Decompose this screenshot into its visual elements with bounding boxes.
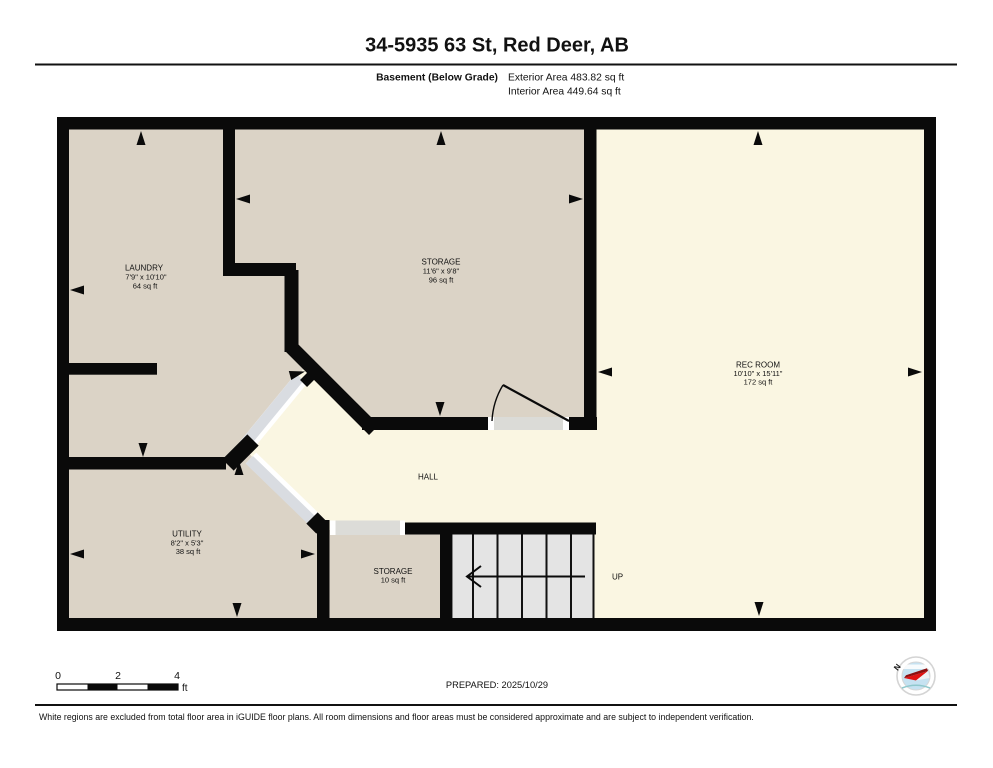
svg-text:White regions are excluded fro: White regions are excluded from total fl… — [39, 712, 754, 722]
svg-text:10 sq ft: 10 sq ft — [381, 576, 407, 585]
svg-text:172 sq ft: 172 sq ft — [744, 378, 774, 387]
svg-text:HALL: HALL — [418, 473, 439, 482]
svg-text:2: 2 — [115, 670, 121, 682]
svg-text:PREPARED: 2025/10/29: PREPARED: 2025/10/29 — [446, 680, 548, 690]
svg-text:ft: ft — [182, 683, 188, 694]
svg-text:64 sq ft: 64 sq ft — [133, 282, 159, 291]
svg-text:0: 0 — [55, 670, 61, 682]
svg-text:7'9" x 10'10": 7'9" x 10'10" — [125, 273, 166, 282]
svg-text:Exterior Area 483.82 sq ft: Exterior Area 483.82 sq ft — [508, 73, 624, 84]
svg-text:STORAGE: STORAGE — [422, 258, 461, 267]
svg-text:38 sq ft: 38 sq ft — [176, 547, 202, 556]
svg-text:Interior Area 449.64 sq ft: Interior Area 449.64 sq ft — [508, 87, 621, 98]
svg-text:Basement (Below Grade): Basement (Below Grade) — [376, 73, 498, 84]
svg-text:UP: UP — [612, 573, 623, 582]
svg-text:UTILITY: UTILITY — [172, 530, 202, 539]
svg-text:11'6" x 9'8": 11'6" x 9'8" — [423, 267, 460, 276]
svg-text:34-5935 63 St, Red Deer, AB: 34-5935 63 St, Red Deer, AB — [365, 35, 629, 57]
svg-text:96 sq ft: 96 sq ft — [429, 276, 455, 285]
svg-text:4: 4 — [174, 670, 180, 682]
svg-text:LAUNDRY: LAUNDRY — [125, 264, 164, 273]
